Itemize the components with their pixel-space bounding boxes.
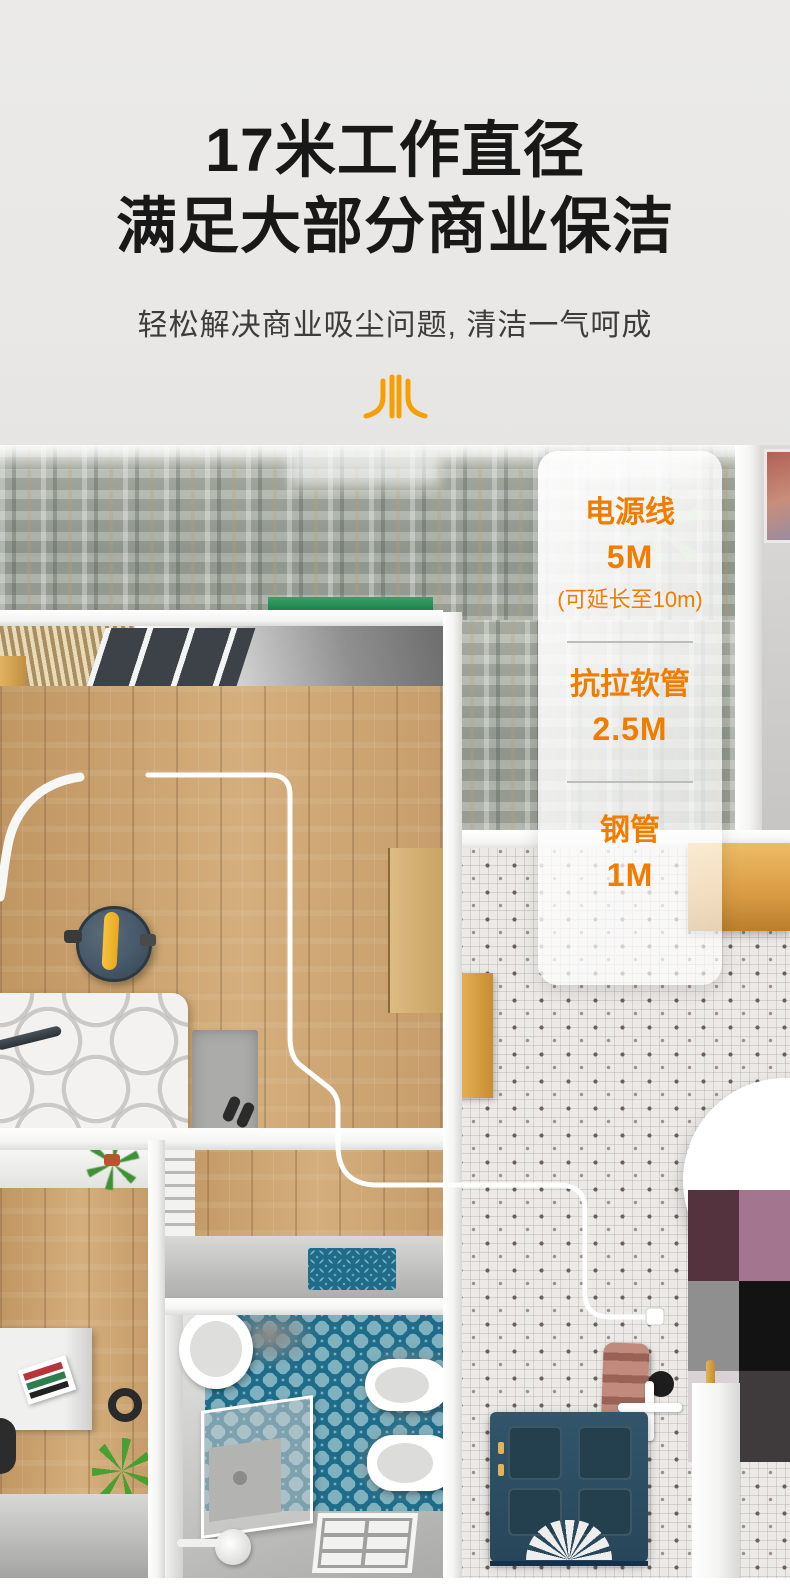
office-chair (0, 1418, 16, 1474)
grate-pane (368, 1521, 409, 1533)
bathroom2-top-wall (163, 1298, 455, 1315)
shower-head (215, 1529, 251, 1565)
door-hinge (498, 1442, 504, 1454)
grate-pane (321, 1553, 362, 1565)
door-panel (578, 1426, 632, 1480)
four-stroke-brand-mark-icon (356, 374, 434, 420)
spec-divider (567, 781, 693, 783)
grate-pane (324, 1521, 365, 1533)
door-sill (490, 1561, 648, 1566)
blue-mat (308, 1248, 396, 1290)
spec-value-steel-tube: 1M (607, 855, 653, 895)
vacuum-cord-port (140, 934, 156, 946)
corridor-room (163, 1150, 443, 1298)
brand-logo-icon (0, 374, 790, 425)
corridor-closet (165, 1150, 195, 1236)
header-section: 17米工作直径 满足大部分商业保洁 轻松解决商业吸尘问题, 清洁一气呵成 (0, 0, 790, 445)
spec-divider (567, 641, 693, 643)
subtitle: 轻松解决商业吸尘问题, 清洁一气呵成 (0, 300, 790, 344)
ceiling-light-reflection (290, 453, 440, 487)
tile-cell (688, 1190, 739, 1281)
title-line-1: 17米工作直径 (0, 112, 790, 188)
spec-label-steel-tube: 钢管 (600, 813, 660, 849)
footer-strip (0, 1578, 790, 1586)
wall-study-divider (148, 1140, 165, 1586)
corridor-top-wall (0, 1128, 455, 1150)
floorplan-photo: 电源线 5M (可延长至10m) 抗拉软管 2.5M 钢管 1M (0, 445, 790, 1586)
skylight-grid (87, 628, 256, 686)
spec-value-hose: 2.5M (592, 709, 667, 749)
spec-value-power-cord: 5M (607, 537, 653, 577)
blue-bathroom (163, 1315, 443, 1586)
spec-panel: 电源线 5M (可延长至10m) 抗拉软管 2.5M 钢管 1M (538, 451, 722, 985)
grate-pane (322, 1537, 363, 1549)
chair-wheelbase (108, 1388, 142, 1422)
bed (0, 993, 188, 1140)
corridor-wood-floor (163, 1150, 443, 1236)
shower-arm (177, 1539, 221, 1547)
toilet-bowl (377, 1443, 433, 1483)
vacuum-hose-port (64, 930, 82, 943)
study-gray-floor (0, 1494, 148, 1586)
door-panel (508, 1426, 562, 1480)
title-line-2: 满足大部分商业保洁 (0, 188, 790, 264)
sink-basin (190, 1321, 242, 1377)
bidet-bowl (375, 1367, 429, 1403)
page-title: 17米工作直径 满足大部分商业保洁 (0, 112, 790, 264)
tile-cell (739, 1371, 790, 1462)
spec-label-power-cord: 电源线 (585, 495, 675, 531)
grate-pane (365, 1553, 406, 1565)
vacuum-handle (101, 912, 119, 971)
spec-note-power-cord: (可延长至10m) (557, 585, 702, 615)
framed-art (764, 449, 790, 543)
study-room (0, 1150, 148, 1586)
floor-grate (312, 1513, 418, 1573)
spec-label-hose: 抗拉软管 (570, 667, 690, 703)
tile-cell (688, 1281, 739, 1372)
shower-drain (233, 1471, 247, 1485)
wardrobe (388, 848, 443, 1013)
plant-pot (104, 1154, 120, 1166)
promo-page: 17米工作直径 满足大部分商业保洁 轻松解决商业吸尘问题, 清洁一气呵成 (0, 0, 790, 1586)
entry-door (490, 1412, 648, 1562)
door-hinge (498, 1464, 504, 1476)
divider-wall (692, 1383, 740, 1586)
tile-cell (739, 1281, 790, 1372)
green-shelf (268, 597, 433, 610)
wall-center-divider (443, 612, 462, 1586)
bedroom (0, 610, 443, 1140)
corridor-gray-floor (163, 1236, 443, 1298)
grate-pane (366, 1537, 407, 1549)
right-wall (735, 445, 762, 837)
bedside-rug (192, 1030, 258, 1140)
tile-cell (739, 1190, 790, 1281)
bedroom-top-wall (0, 610, 443, 626)
towel-bar-horizontal (618, 1403, 682, 1412)
